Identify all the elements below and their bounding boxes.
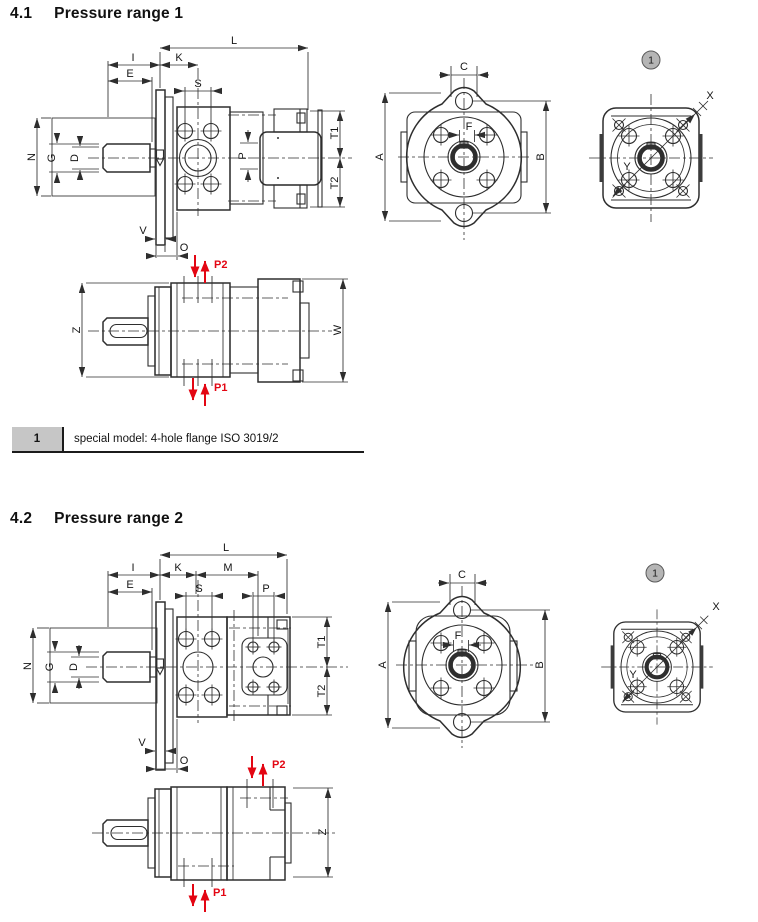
pump-top-outline xyxy=(88,276,332,386)
dim-label-D: D xyxy=(68,663,80,671)
port-label-p2: P2 xyxy=(272,759,285,771)
s2-bottom-view: Z P2 P1 xyxy=(92,756,335,912)
dim-label-K: K xyxy=(174,562,182,574)
port-label-p1: P1 xyxy=(213,887,226,899)
dim-label-O: O xyxy=(180,242,189,254)
dim-label-G: G xyxy=(44,663,56,672)
dim-label-F: F xyxy=(466,121,473,133)
dim-label-E: E xyxy=(126,68,133,80)
dim-label-V: V xyxy=(138,737,146,749)
dim-label-T2: T2 xyxy=(329,177,341,190)
callout-number: 1 xyxy=(648,55,654,67)
dim-label-D: D xyxy=(69,154,81,162)
flange-front-outline xyxy=(398,78,532,240)
s2-side-view: L I K M E xyxy=(22,542,348,773)
dim-label-Y: Y xyxy=(629,669,637,681)
dim-label-Y: Y xyxy=(623,161,631,173)
s2-square-flange-view: 1 X Y xyxy=(601,564,720,725)
s1-front-view: C F A B xyxy=(374,61,551,240)
dim-label-N: N xyxy=(22,662,34,670)
dim-label-T2: T2 xyxy=(316,685,328,698)
s2-port-arrows: P2 P1 xyxy=(193,756,285,912)
dim-label-S: S xyxy=(195,583,202,595)
dim-label-W: W xyxy=(332,324,344,335)
dim-label-I: I xyxy=(131,52,134,64)
port-label-p2: P2 xyxy=(214,259,227,271)
dim-label-X: X xyxy=(706,90,714,102)
s2-bottom-dimensions: Z xyxy=(293,788,333,877)
dim-label-C: C xyxy=(458,569,466,581)
dim-label-X: X xyxy=(712,601,720,613)
s1-side-dimensions: L I K E S xyxy=(26,35,345,260)
dim-label-A: A xyxy=(374,153,386,161)
dim-label-L: L xyxy=(231,35,237,47)
square-flange-outline xyxy=(589,94,713,222)
dim-label-V: V xyxy=(139,225,147,237)
dim-label-T1: T1 xyxy=(329,127,341,140)
dim-label-G: G xyxy=(46,154,58,163)
s1-bottom-dimensions: Z W xyxy=(71,279,348,382)
dim-label-B: B xyxy=(534,661,546,668)
dim-label-N: N xyxy=(26,153,38,161)
datasheet-page: 4.1 Pressure range 1 4.2 Pressure range … xyxy=(0,0,758,922)
dim-label-I: I xyxy=(131,562,134,574)
dim-label-A: A xyxy=(377,661,389,669)
port-label-p1: P1 xyxy=(214,382,227,394)
s2-front-view: C F A B xyxy=(377,569,550,748)
dim-label-P: P xyxy=(237,152,249,159)
dim-label-C: C xyxy=(460,61,468,73)
dim-label-S: S xyxy=(194,78,201,90)
s1-bottom-view: Z W P2 P1 xyxy=(71,255,348,406)
pump-side-outline xyxy=(50,580,348,770)
callout-number: 1 xyxy=(652,568,658,580)
dim-label-K: K xyxy=(175,52,183,64)
pump-top-outline xyxy=(92,779,335,887)
s1-square-flange-view: 1 X Y xyxy=(589,51,714,222)
dim-label-Z: Z xyxy=(317,828,329,835)
dim-label-E: E xyxy=(126,579,133,591)
dim-label-F: F xyxy=(455,630,462,642)
dim-label-M: M xyxy=(223,562,232,574)
dim-label-O: O xyxy=(180,755,189,767)
pump-side-outline xyxy=(52,68,352,245)
s1-side-view: L I K E S xyxy=(26,35,352,260)
technical-drawings: L I K E S xyxy=(0,0,758,922)
dim-label-B: B xyxy=(535,153,547,160)
dim-label-P: P xyxy=(262,583,269,595)
dim-label-T1: T1 xyxy=(316,636,328,649)
s2-front-dimensions: C F A B xyxy=(377,569,550,728)
dim-label-Z: Z xyxy=(71,326,83,333)
dim-label-L: L xyxy=(223,542,229,554)
square-flange-outline xyxy=(601,609,713,724)
